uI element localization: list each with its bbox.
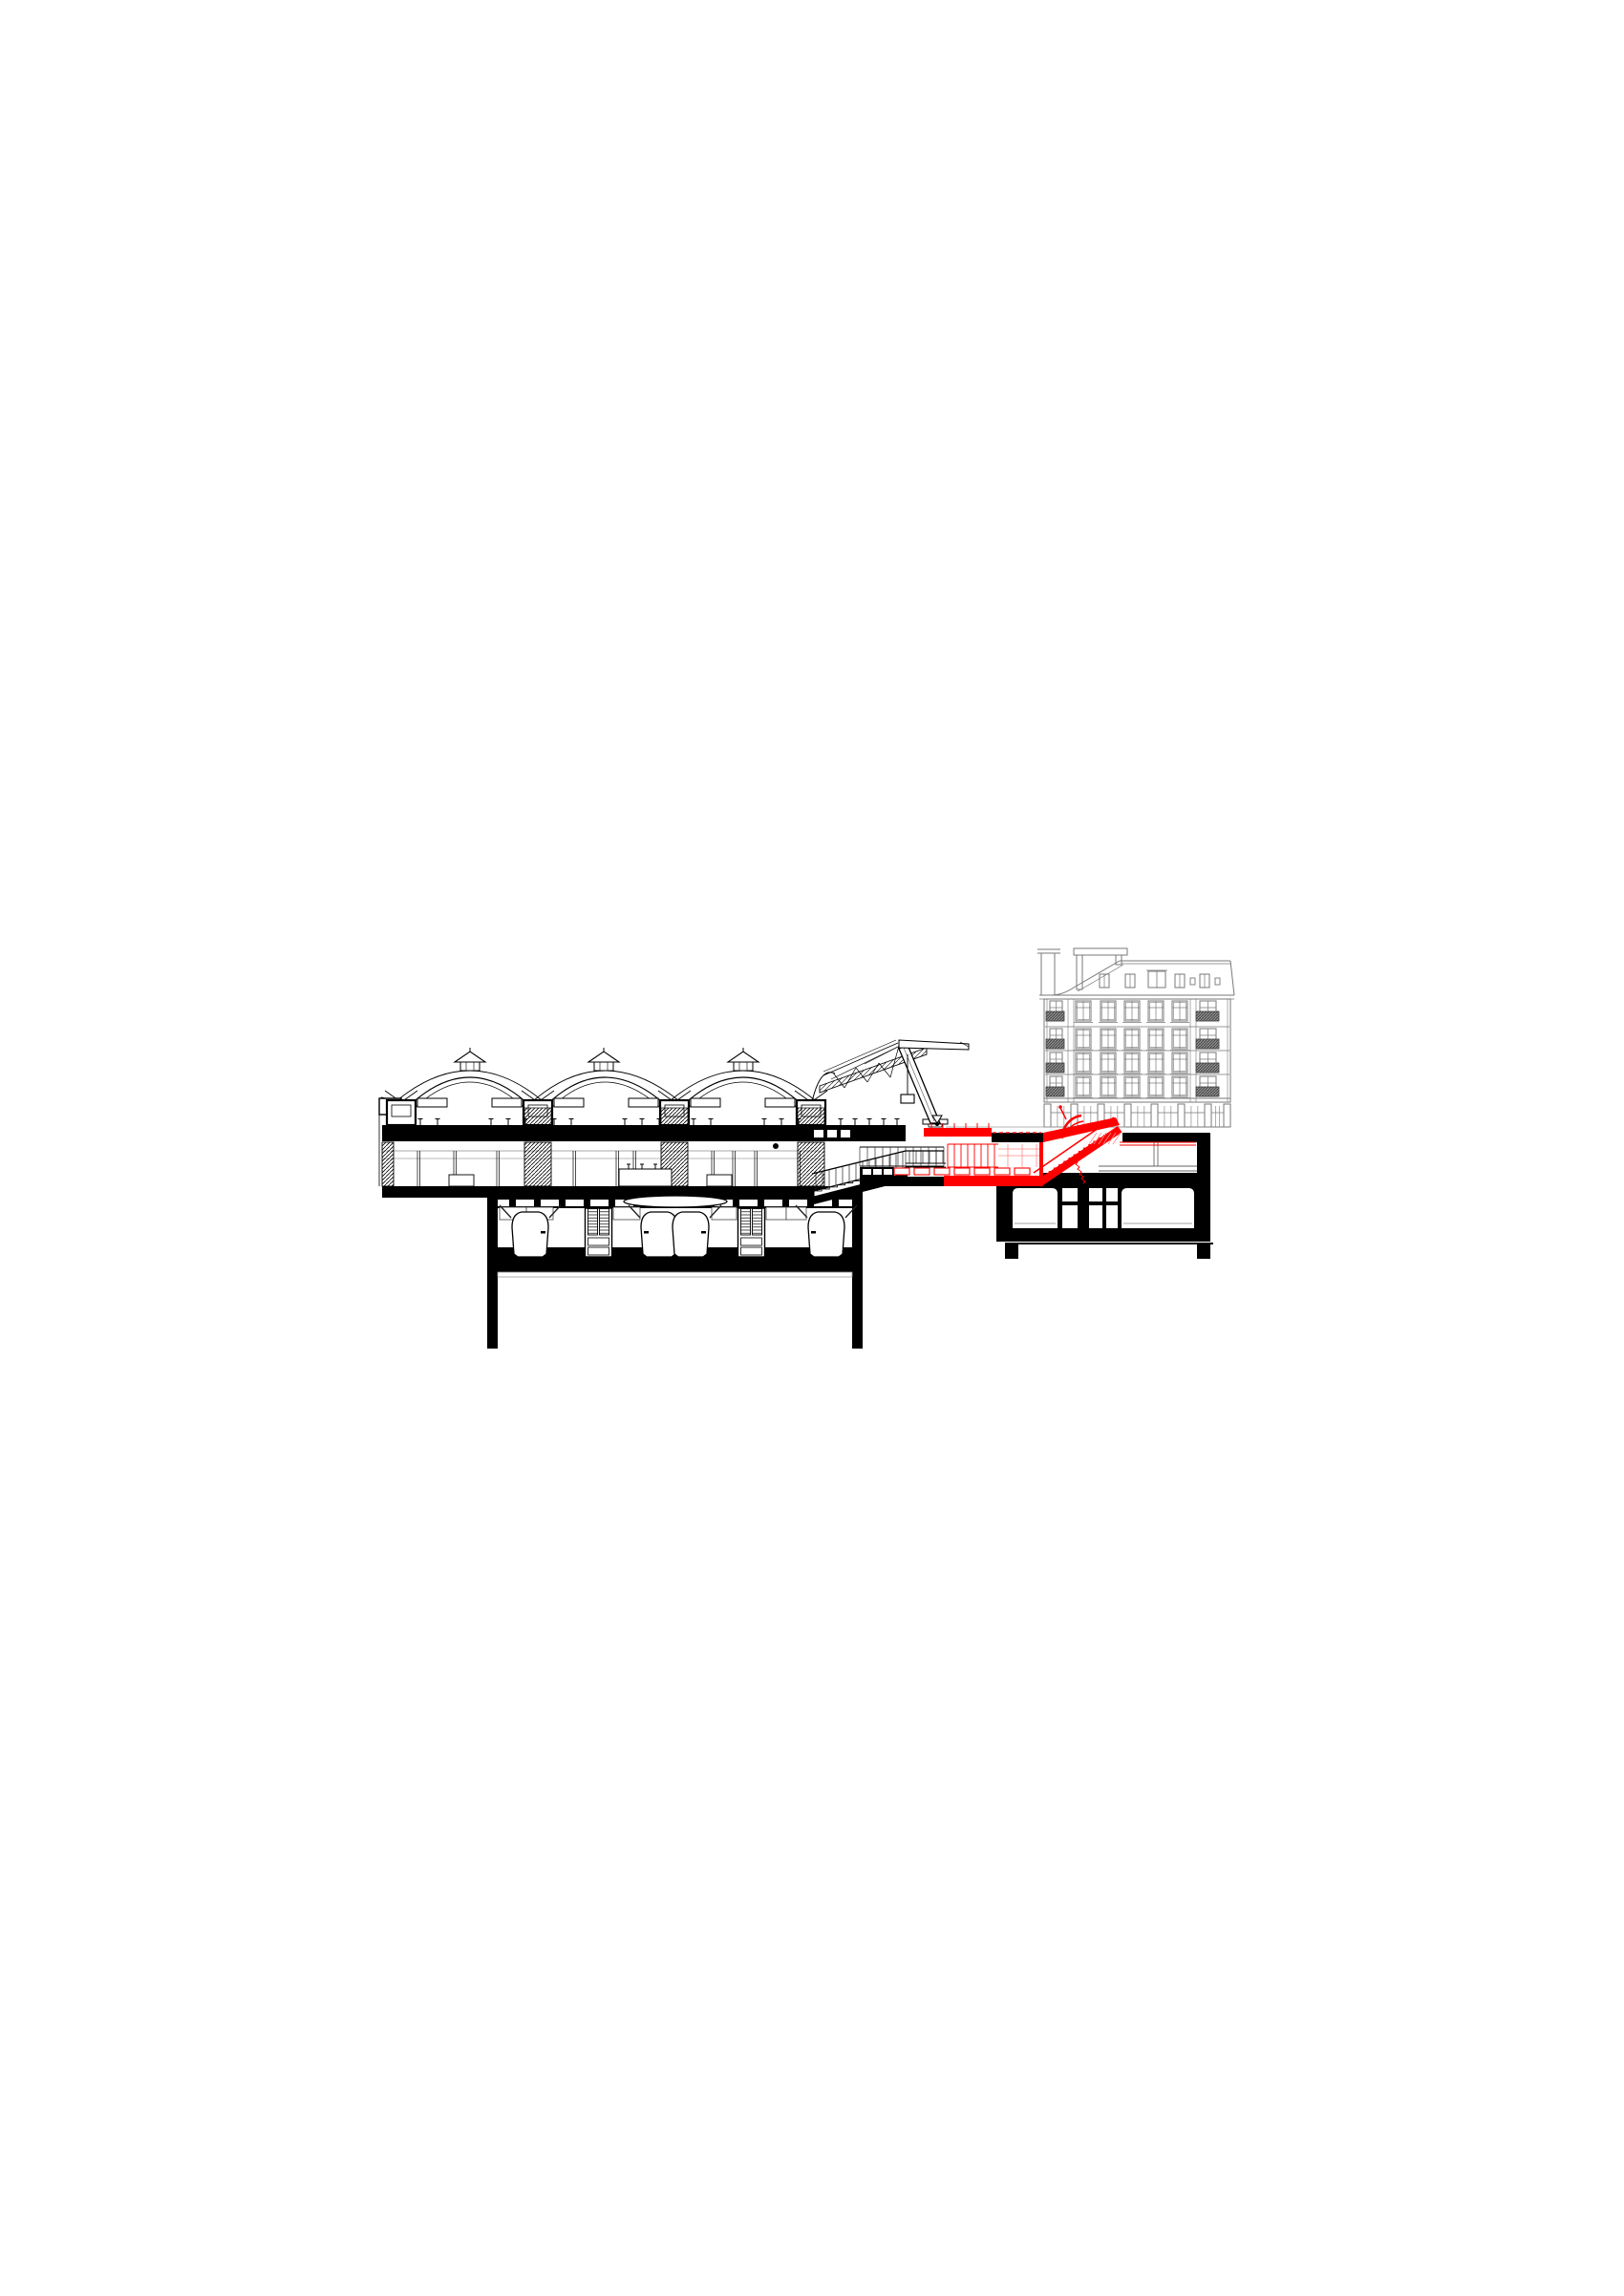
ceiling-dot	[773, 1143, 779, 1149]
tunnel-level	[487, 1186, 863, 1349]
metro-train	[641, 1212, 677, 1262]
basement-mid-slab	[1039, 1173, 1210, 1184]
section-drawing	[0, 0, 1624, 2296]
drawing-canvas	[0, 0, 1624, 2296]
platform-furniture	[418, 1119, 900, 1126]
mezzanine-columns	[417, 1151, 801, 1186]
roof-lantern	[455, 1048, 485, 1071]
roof-dormer	[1146, 970, 1167, 988]
foundation-leg	[1197, 1244, 1210, 1259]
platform-core	[586, 1208, 612, 1257]
red-pole-tip	[1058, 1105, 1062, 1109]
roof-lantern	[728, 1048, 759, 1071]
roof-lantern	[588, 1048, 619, 1071]
basement-block	[996, 1184, 1210, 1232]
basement-room	[1013, 1188, 1058, 1228]
roof-dormer	[1125, 974, 1135, 988]
escalator-shaft-hatch	[798, 1108, 824, 1186]
metro-train	[808, 1212, 844, 1262]
basement-wall	[1197, 1133, 1210, 1175]
escalator-shaft-hatch	[382, 1142, 394, 1186]
platform-core	[738, 1208, 765, 1257]
foundation	[1005, 1244, 1213, 1259]
basement-cell	[1106, 1188, 1118, 1201]
street-slab	[382, 1125, 906, 1141]
mansard-roof	[1039, 961, 1234, 999]
existing-sidewalk-slab	[992, 1133, 1043, 1142]
escalator-shaft-hatch	[524, 1108, 551, 1186]
vault-capital	[387, 1098, 447, 1125]
roof-dormer-small	[1190, 978, 1195, 985]
mezzanine-equipment	[449, 1164, 732, 1186]
metro-train	[512, 1212, 548, 1262]
basement-bottom-slab	[996, 1232, 1210, 1242]
storefront-colonnade	[1044, 1104, 1230, 1127]
metro-train	[673, 1212, 709, 1262]
concourse-glazing-red	[948, 1144, 1041, 1167]
basement-cell	[1062, 1205, 1078, 1228]
basement-cell	[1089, 1188, 1102, 1201]
basement-cell	[1089, 1205, 1102, 1228]
mezzanine-floor-slab	[382, 1186, 863, 1198]
building-basement	[996, 1133, 1213, 1259]
ventilation-duct-oval	[624, 1196, 727, 1207]
foundation-leg	[1005, 1244, 1018, 1259]
basement-cell	[1106, 1205, 1118, 1228]
tunnel-floor-slab	[487, 1257, 863, 1277]
building-facade	[1037, 948, 1234, 1127]
basement-cell	[1062, 1188, 1078, 1201]
chimney	[1037, 948, 1127, 995]
roof-dormer	[1200, 974, 1209, 988]
basement-room	[1122, 1188, 1194, 1228]
canopy-structure	[820, 1040, 969, 1126]
roof-dormer-small	[1215, 978, 1220, 985]
canopy-arm	[899, 1040, 969, 1050]
mezzanine-level	[382, 1108, 863, 1198]
roof-dormer	[1100, 974, 1109, 988]
red-pole	[1060, 1108, 1066, 1119]
roof-dormer	[1175, 974, 1185, 988]
